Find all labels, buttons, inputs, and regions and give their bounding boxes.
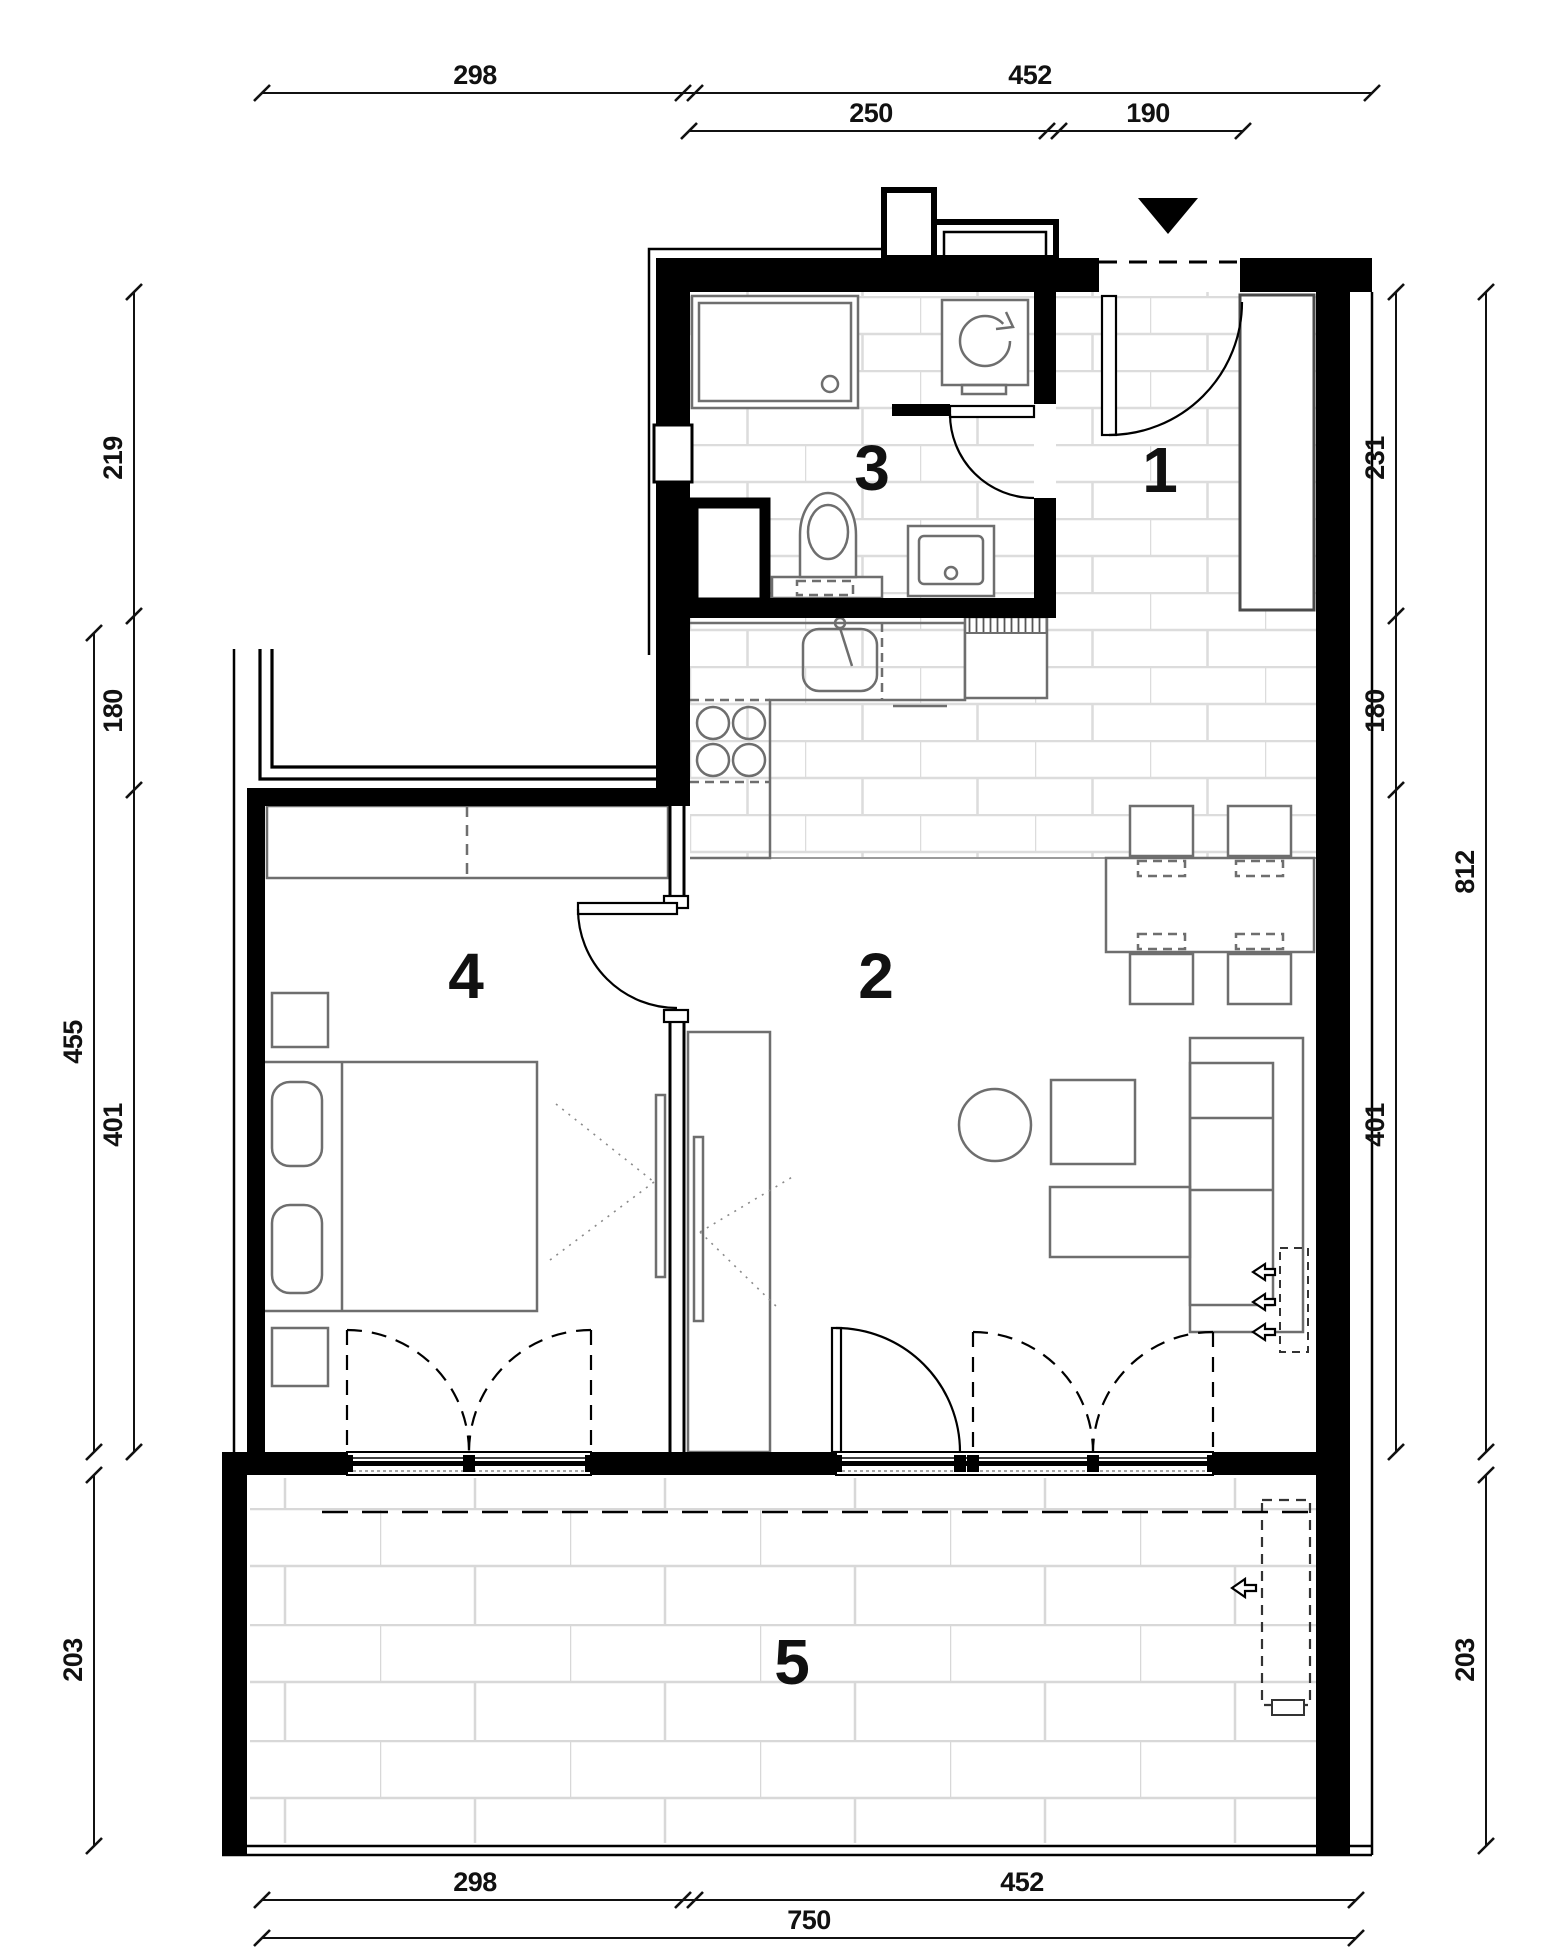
bedroom-furniture [262,806,668,1386]
entry-door-leaf [1102,296,1116,435]
dim-label: 298 [453,60,497,90]
dim-label: 401 [98,1103,128,1147]
dining-chair [1228,954,1291,1004]
dim-label: 190 [1126,98,1170,128]
dim-label: 455 [58,1020,88,1064]
room-label-balcony: 5 [774,1626,810,1698]
shaft-step [934,222,1056,258]
dim-label: 231 [1360,436,1390,480]
bathroom-door-stub [892,404,950,416]
bathroom-door-leaf [950,406,1034,417]
south-wall-segment [247,1452,347,1475]
living-room-furniture [959,1038,1308,1352]
dim-label: 401 [1360,1103,1390,1147]
dim-label: 203 [58,1638,88,1682]
top-right-cap-wall [1240,258,1372,292]
room-label-living: 2 [858,940,894,1012]
room-label-entry: 1 [1142,434,1178,506]
nightstand [272,1328,328,1386]
floor-tiles [250,292,1316,1843]
bedroom-west-wall [247,788,265,1452]
bedroom-north-wall [247,788,690,806]
living-radiator [1253,1248,1308,1352]
airflow-arrow-icon [1253,1324,1275,1340]
wall-niche [654,425,692,482]
dim-label: 452 [1008,60,1052,90]
sofa-chaise [1050,1187,1190,1257]
entry-closet [1240,295,1314,610]
right-wall [1316,292,1350,1855]
notch-wall [272,649,656,767]
vent-grille-icon [965,617,1047,633]
living-french-door [973,1332,1213,1452]
shower-tray [692,296,858,408]
side-table [1051,1080,1135,1164]
bathroom-east-wall-lower [1034,498,1056,610]
dim-label: 750 [787,1905,831,1935]
airflow-arrow-icon [1253,1294,1275,1310]
notch-wall [260,649,656,779]
bathroom-sink [908,526,994,596]
sofa [1050,1038,1303,1332]
bedroom-door-leaf [578,903,677,914]
south-wall-segment [591,1452,836,1475]
airflow-arrow-icon [1253,1264,1275,1280]
dim-label: 180 [1360,689,1390,733]
sliding-mirror-panel [694,1137,703,1321]
balcony-door-leaf [832,1328,841,1452]
floor-plan-canvas: 298 452 250 190 219 180 401 455 203 231 … [0,0,1568,1952]
south-wall-segment [1213,1452,1316,1475]
round-coffee-table [959,1089,1031,1161]
dim-label: 203 [1450,1638,1480,1682]
living-wardrobe [550,1032,794,1452]
entrance-marker-icon [1138,198,1198,234]
shaft-step [884,190,934,258]
balcony-door-swing-arc [836,1328,960,1452]
pillow [272,1082,322,1166]
dining-chair [1228,806,1291,856]
bedroom-wardrobe [267,806,668,878]
tall-cabinet-fridge [965,617,1047,698]
room-label-bedroom: 4 [448,940,484,1012]
balcony-west-wall [222,1452,247,1855]
door-jamb [664,1010,688,1022]
window-run-living [836,1452,1213,1475]
bathroom-east-wall-upper [1034,292,1056,404]
mirror-panel [656,1095,665,1277]
top-wall [656,258,1099,292]
left-upper-wall [656,258,690,806]
bedroom-french-door [347,1330,591,1452]
dim-label: 250 [849,98,893,128]
dim-label: 180 [98,689,128,733]
dining-chair [1130,954,1193,1004]
washing-machine [942,300,1028,394]
dining-chair [1130,806,1193,856]
dim-label: 219 [98,436,128,480]
room-label-bathroom: 3 [854,432,890,504]
bed [262,1062,537,1311]
dim-label: 298 [453,1867,497,1897]
dim-label: 452 [1000,1867,1044,1897]
mirror-reflection-marks [550,1104,794,1310]
dim-label: 812 [1450,850,1480,894]
nightstand [272,993,328,1047]
duct-shaft [693,503,765,603]
pillow [272,1205,322,1293]
bedroom-door-swing-arc [578,909,677,1008]
